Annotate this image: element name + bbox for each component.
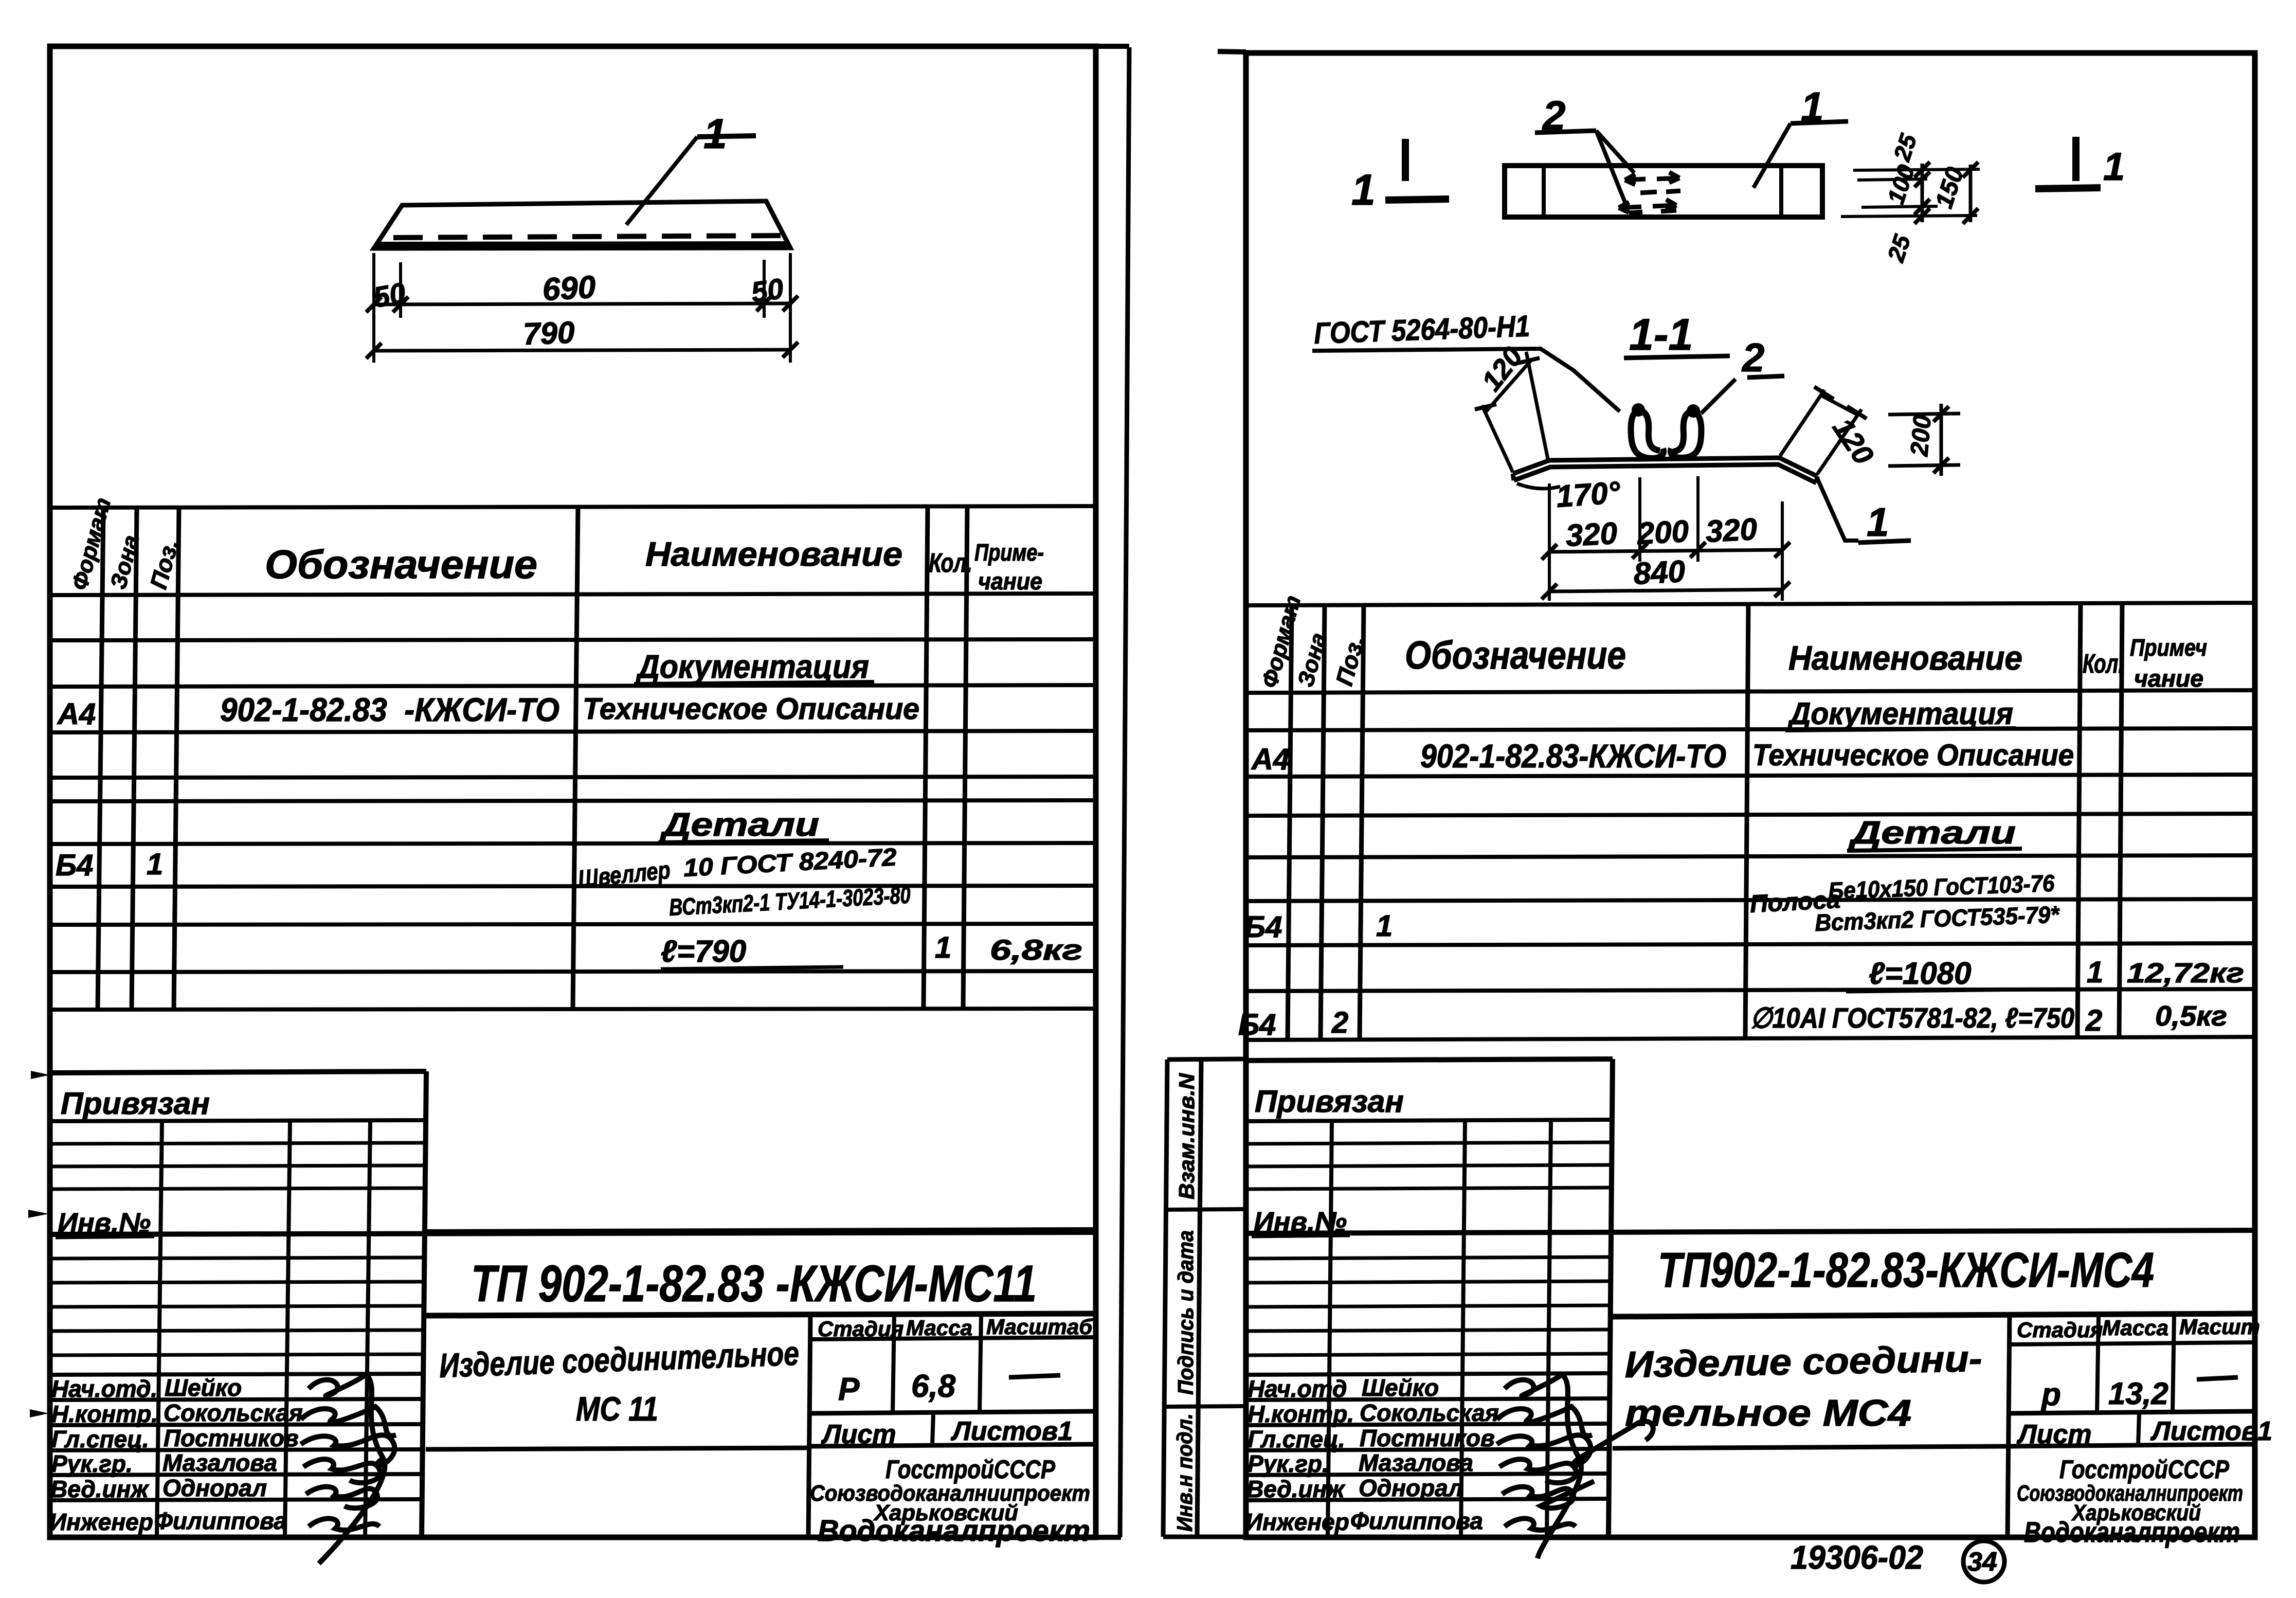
svg-text:Н.контр.: Н.контр.: [1248, 1401, 1354, 1427]
svg-text:Кол.: Кол.: [929, 548, 972, 578]
svg-text:ГосстройСССР: ГосстройСССР: [885, 1455, 1056, 1484]
svg-text:ℓ=1080: ℓ=1080: [1869, 956, 1971, 991]
svg-text:Листов1: Листов1: [2150, 1416, 2272, 1446]
svg-text:Детали: Детали: [1848, 815, 2016, 851]
svg-text:1: 1: [935, 931, 951, 964]
svg-text:Шейко: Шейко: [165, 1374, 242, 1401]
svg-text:Постников: Постников: [1360, 1425, 1495, 1451]
svg-text:Мазалова: Мазалова: [1359, 1449, 1473, 1476]
svg-text:ТП902-1-82.83-КЖСИ-МС4: ТП902-1-82.83-КЖСИ-МС4: [1658, 1243, 2154, 1298]
svg-text:2: 2: [1331, 1006, 1348, 1039]
svg-text:Примеч: Примеч: [2130, 634, 2207, 661]
svg-text:Однорал: Однорал: [1359, 1475, 1463, 1501]
svg-text:Привязан: Привязан: [1255, 1084, 1404, 1119]
svg-text:1: 1: [1867, 499, 1889, 545]
svg-text:1: 1: [2103, 145, 2125, 189]
svg-text:чание: чание: [2134, 665, 2203, 692]
svg-text:Техническое Описание: Техническое Описание: [583, 692, 919, 726]
svg-text:тельное МС4: тельное МС4: [1625, 1393, 1911, 1434]
svg-text:ТП 902-1-82.83 -КЖСИ-МС11: ТП 902-1-82.83 -КЖСИ-МС11: [471, 1255, 1037, 1313]
svg-text:Шейко: Шейко: [1362, 1374, 1439, 1401]
svg-text:Вед.инж: Вед.инж: [50, 1476, 149, 1502]
svg-text:р: р: [2040, 1377, 2061, 1412]
svg-text:Н.контр.: Н.контр.: [51, 1401, 158, 1427]
svg-text:Филиппова: Филиппова: [154, 1507, 287, 1534]
svg-text:320: 320: [1705, 512, 1758, 549]
svg-text:2: 2: [2085, 1004, 2102, 1037]
svg-text:Сокольская: Сокольская: [164, 1399, 303, 1426]
svg-text:Масса: Масса: [2102, 1316, 2168, 1340]
svg-text:Однорал: Однорал: [162, 1475, 267, 1501]
svg-text:А4: А4: [57, 697, 96, 731]
svg-text:902-1-82.83-КЖСИ-ТО: 902-1-82.83-КЖСИ-ТО: [1420, 738, 1726, 775]
svg-text:Подпись и дата: Подпись и дата: [1173, 1230, 1198, 1395]
svg-text:Мазалова: Мазалова: [162, 1449, 277, 1476]
svg-text:Филиппова: Филиппова: [1350, 1507, 1483, 1534]
svg-text:∅10АІ ГОСТ5781-82, ℓ=750: ∅10АІ ГОСТ5781-82, ℓ=750: [1750, 1002, 2074, 1034]
svg-text:Обозначение: Обозначение: [1405, 634, 1626, 677]
svg-text:790: 790: [522, 315, 575, 351]
svg-text:6,8: 6,8: [911, 1369, 956, 1404]
svg-text:Документация: Документация: [635, 648, 869, 685]
svg-text:Взам.инв.N: Взам.инв.N: [1174, 1072, 1199, 1199]
svg-text:840: 840: [1633, 554, 1686, 591]
svg-text:Изделие соедини-: Изделие соедини-: [1624, 1338, 1982, 1386]
svg-text:50: 50: [371, 276, 408, 314]
svg-text:Инв.н подл.: Инв.н подл.: [1172, 1413, 1197, 1532]
svg-text:Водоканалпроект: Водоканалпроект: [2024, 1516, 2240, 1548]
svg-text:Стадия: Стадия: [2017, 1318, 2103, 1342]
svg-text:50: 50: [749, 272, 785, 309]
svg-text:6,8кг: 6,8кг: [990, 933, 1082, 966]
svg-text:чание: чание: [978, 568, 1042, 595]
svg-text:Нач.отд.: Нач.отд.: [51, 1375, 157, 1402]
svg-text:200: 200: [1906, 414, 1937, 458]
svg-text:Б4: Б4: [1244, 910, 1282, 944]
svg-text:Вед.инж: Вед.инж: [1246, 1476, 1345, 1502]
svg-text:Приме-: Приме-: [974, 539, 1044, 566]
svg-text:Гл.спец.: Гл.спец.: [1248, 1426, 1345, 1452]
svg-text:1: 1: [147, 848, 163, 881]
svg-text:170°: 170°: [1555, 475, 1621, 514]
svg-text:ℓ=790: ℓ=790: [661, 934, 746, 968]
svg-text:12,72кг: 12,72кг: [2127, 958, 2244, 989]
svg-text:Р: Р: [838, 1372, 860, 1407]
svg-text:Рук.гр.: Рук.гр.: [1248, 1450, 1329, 1477]
svg-text:Б4: Б4: [1238, 1008, 1276, 1042]
svg-text:13,2: 13,2: [2108, 1376, 2168, 1411]
svg-text:0,5кг: 0,5кг: [2155, 1000, 2227, 1032]
svg-text:690: 690: [541, 270, 596, 308]
svg-text:Нач.отд: Нач.отд: [1248, 1375, 1347, 1402]
svg-text:Б4: Б4: [56, 849, 93, 882]
svg-text:Документация: Документация: [1787, 696, 2013, 731]
svg-text:Наименование: Наименование: [1788, 639, 2022, 677]
svg-text:Инженер: Инженер: [1245, 1509, 1349, 1535]
svg-text:Листов1: Листов1: [950, 1416, 1073, 1446]
svg-text:Масшт: Масшт: [2179, 1315, 2260, 1339]
svg-text:Техническое Описание: Техническое Описание: [1752, 739, 2074, 772]
svg-text:320: 320: [1565, 516, 1618, 553]
svg-text:ГосстройСССР: ГосстройСССР: [2059, 1455, 2230, 1484]
svg-text:Постников: Постников: [164, 1425, 299, 1451]
svg-text:2: 2: [1741, 335, 1764, 380]
svg-text:МС 11: МС 11: [576, 1390, 658, 1428]
svg-text:1-1: 1-1: [1629, 310, 1693, 360]
svg-text:А4: А4: [1251, 743, 1290, 776]
svg-text:1: 1: [1376, 909, 1393, 943]
svg-text:34: 34: [1967, 1547, 1997, 1577]
svg-text:902-1-82.83 -КЖСИ-ТО: 902-1-82.83 -КЖСИ-ТО: [220, 691, 559, 728]
svg-text:Кол.: Кол.: [2083, 649, 2124, 679]
svg-text:19306-02: 19306-02: [1791, 1539, 1923, 1576]
svg-text:Рук.гр.: Рук.гр.: [51, 1450, 133, 1477]
svg-text:Инженер: Инженер: [49, 1509, 153, 1535]
svg-text:Гл.спец.: Гл.спец.: [51, 1426, 149, 1452]
svg-text:Детали: Детали: [659, 806, 819, 843]
svg-text:Водоканалпроект: Водоканалпроект: [818, 1514, 1090, 1548]
svg-text:1: 1: [2087, 956, 2103, 989]
svg-text:1: 1: [1351, 166, 1376, 214]
svg-text:Масштаб: Масштаб: [986, 1315, 1093, 1339]
svg-text:200: 200: [1636, 514, 1689, 551]
svg-text:Привязан: Привязан: [61, 1086, 210, 1121]
svg-text:Наименование: Наименование: [645, 535, 902, 573]
svg-text:Сокольская: Сокольская: [1360, 1399, 1499, 1426]
svg-text:Обозначение: Обозначение: [265, 542, 537, 587]
